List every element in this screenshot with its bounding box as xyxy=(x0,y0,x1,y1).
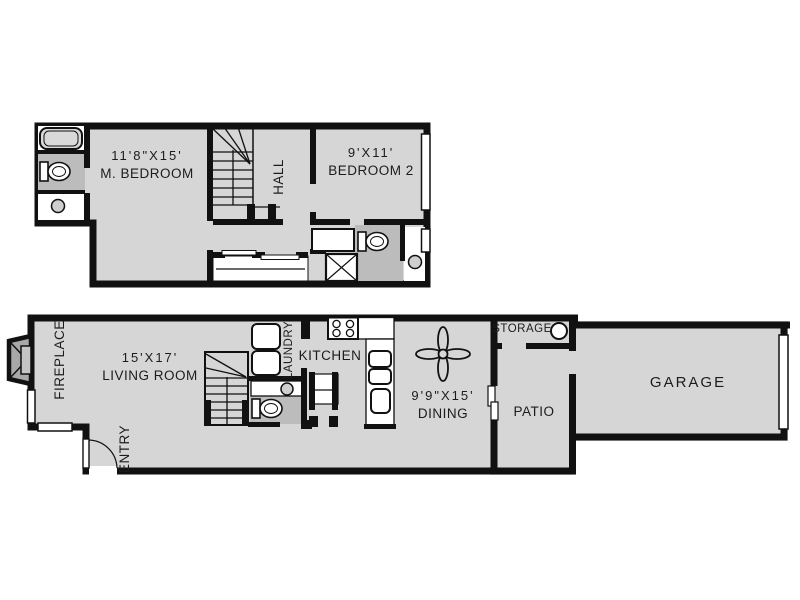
garage-label: GARAGE xyxy=(650,374,726,391)
wall-storage-top xyxy=(490,315,578,322)
sink-icon-master xyxy=(52,200,65,213)
wall-halfbath-right xyxy=(301,368,307,424)
toilet-icon-half-bath xyxy=(252,399,282,418)
wall-closet-left xyxy=(207,250,213,284)
hall-label: HALL xyxy=(271,159,286,195)
sink-icon-half-bath xyxy=(281,383,293,395)
toilet-icon-master xyxy=(40,162,70,181)
upper-floor: 11'8"X15' M. BEDROOM HALL 9'X11' BEDROOM… xyxy=(36,124,430,284)
range-icon xyxy=(328,318,358,340)
garage-door xyxy=(779,335,788,429)
bathtub-icon xyxy=(40,128,82,149)
window-bedroom2 xyxy=(422,134,431,210)
wall-hall-bottom xyxy=(213,219,283,225)
wall-masterbath-upper xyxy=(84,124,90,168)
wall-storage-bottom-stub xyxy=(494,343,502,349)
wall-garage-top xyxy=(569,322,790,329)
toilet-icon-hall-bath xyxy=(358,232,388,251)
bedroom2-label: BEDROOM 2 xyxy=(328,163,414,178)
lower-floor: 15'X17' LIVING ROOM FIREPLACE ENTRY LAUN… xyxy=(9,315,790,477)
vanity-icon xyxy=(312,229,354,251)
wall-hallbath-sink xyxy=(400,225,405,261)
fireplace-icon xyxy=(9,336,31,384)
kitchen-sink-icon xyxy=(371,389,390,413)
window-entry xyxy=(38,423,72,431)
window-hall-bath xyxy=(422,229,431,252)
bedroom2-dimensions: 9'X11' xyxy=(348,145,394,160)
wall-garage-bottom xyxy=(569,434,788,441)
stairs-icon-lower xyxy=(205,352,248,425)
storage-label: STORAGE xyxy=(492,323,552,335)
wall-bedroom2-bottom-left xyxy=(310,219,350,225)
wall-counter-end xyxy=(364,424,396,429)
wall-bedroom2-bottom-right xyxy=(364,219,430,225)
wall-halfbath-top xyxy=(248,376,307,381)
wall-tub-divider xyxy=(36,150,85,154)
wall-patio-bottom xyxy=(490,468,576,475)
water-heater-icon xyxy=(551,323,567,339)
window-living-left xyxy=(28,390,36,423)
master-bedroom-dimensions: 11'8"X15' xyxy=(111,148,182,163)
entry-door-opening xyxy=(89,466,117,476)
master-bedroom-label: M. BEDROOM xyxy=(100,166,194,181)
sink-icon-hall-bath xyxy=(409,256,422,269)
laundry-label: LAUNDRY xyxy=(283,321,295,379)
fireplace-label: FIREPLACE xyxy=(52,320,67,400)
dining-label: DINING xyxy=(418,406,468,421)
half-bath-counter xyxy=(251,381,303,396)
kitchen-label: KITCHEN xyxy=(299,348,362,363)
washer-dryer-icon xyxy=(252,324,280,375)
wall-patio-right xyxy=(569,374,576,474)
wall-masterbath-lower xyxy=(84,193,90,223)
patio-label: PATIO xyxy=(513,404,554,419)
floor-plan-drawing: 11'8"X15' M. BEDROOM HALL 9'X11' BEDROOM… xyxy=(0,0,800,600)
living-room-label: LIVING ROOM xyxy=(102,368,198,383)
living-room-dimensions: 15'X17' xyxy=(122,350,179,365)
wall-bedroom2-left xyxy=(310,124,316,184)
wall-kitchen-stub xyxy=(301,318,310,339)
wall-halfbath-bottom xyxy=(248,422,280,427)
wall-sink-divider xyxy=(36,190,85,194)
floor-plan-page: 11'8"X15' M. BEDROOM HALL 9'X11' BEDROOM… xyxy=(0,0,800,600)
wall-storage-bottom xyxy=(526,343,576,349)
refrigerator-icon xyxy=(369,351,391,384)
shower-icon xyxy=(326,254,357,281)
entry-label: ENTRY xyxy=(117,425,132,473)
closet-icon xyxy=(213,251,308,282)
dining-dimensions: 9'9"X15' xyxy=(411,388,474,403)
